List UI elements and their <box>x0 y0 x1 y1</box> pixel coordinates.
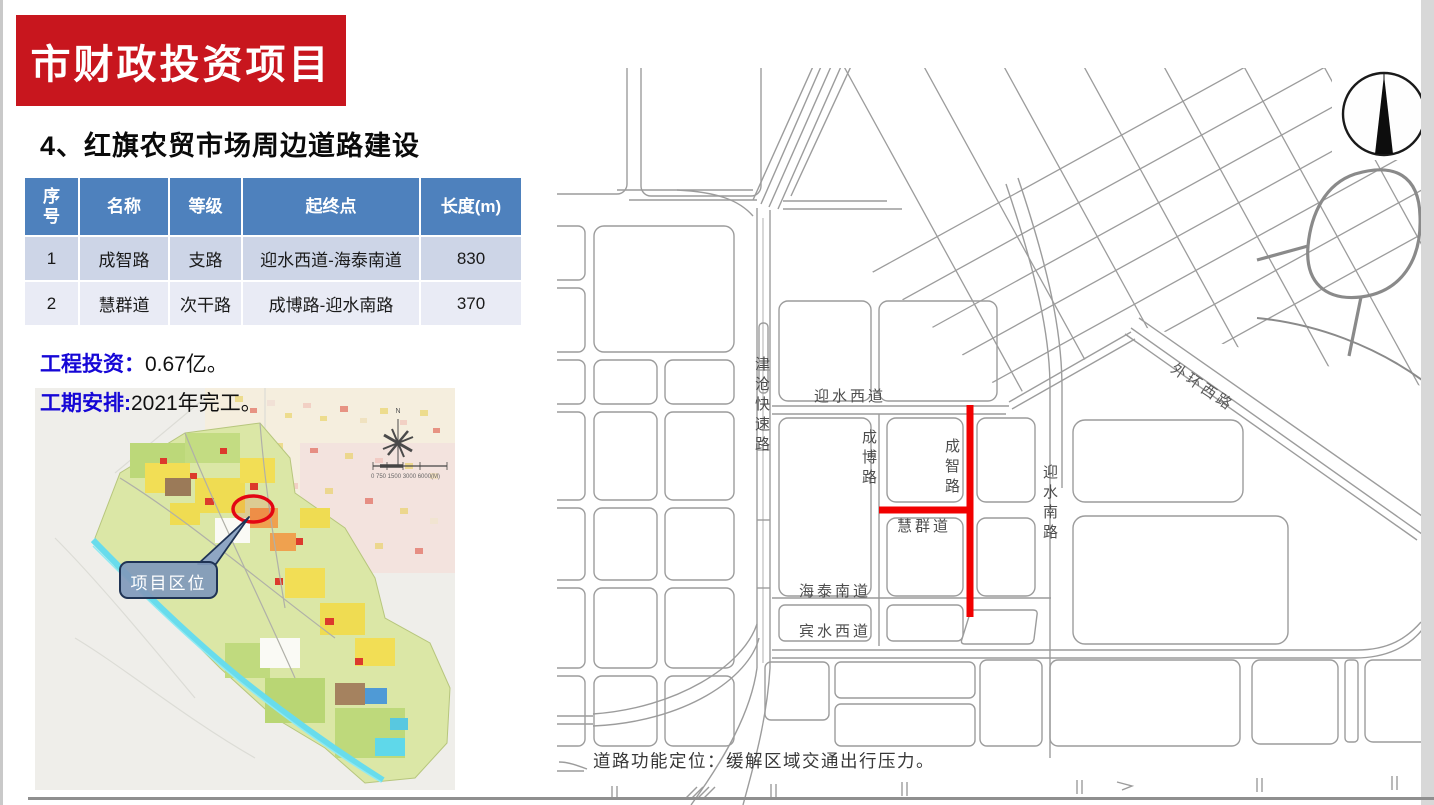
road-label-haitai-south: 海泰南道 <box>799 580 871 601</box>
table-row1-length: 830 <box>421 237 521 280</box>
investment-line: 工程投资：0.67亿。 <box>40 348 228 378</box>
road-label-yingshui-south: 迎水南路 <box>1039 464 1060 544</box>
road-label-chengbo: 成博路 <box>858 429 879 489</box>
page-title: 4、红旗农贸市场周边道路建设 <box>40 124 420 163</box>
road-function-note: 道路功能定位：缓解区域交通出行压力。 <box>593 748 935 773</box>
table-row2-grade: 次干路 <box>170 282 241 325</box>
slide: 市财政投资项目 4、红旗农贸市场周边道路建设 序号 名称 等级 起终点 长度(m… <box>0 0 1434 805</box>
north-compass-icon <box>1332 68 1422 160</box>
banner: 市财政投资项目 <box>16 15 346 106</box>
road-network-graphic <box>557 68 1422 805</box>
project-location-callout: 项目区位 <box>120 565 217 598</box>
schedule-label: 工期安排: <box>40 392 131 415</box>
road-label-huiqun: 慧群道 <box>897 515 951 536</box>
road-label-binshui-west: 宾水西道 <box>799 620 871 641</box>
table-row1-name: 成智路 <box>80 237 168 280</box>
col-header-no: 序号 <box>25 178 78 235</box>
table-row2-no: 2 <box>25 282 78 325</box>
road-label-jincang-expressway: 津沧快速路 <box>751 356 772 456</box>
scale-bar-label: 0 750 1500 3000 6000(M) <box>371 474 440 480</box>
compass-n-label: N <box>395 408 400 415</box>
col-header-length: 长度(m) <box>421 178 521 235</box>
col-header-name: 名称 <box>80 178 168 235</box>
road-label-chengzhi: 成智路 <box>941 438 962 498</box>
table-row2-endpoints: 成博路-迎水南路 <box>243 282 419 325</box>
investment-label: 工程投资： <box>40 353 145 376</box>
investment-value: 0.67亿。 <box>145 353 228 376</box>
road-label-yingshui-west: 迎水西道 <box>814 385 886 406</box>
project-table: 序号 名称 等级 起终点 长度(m) 1 成智路 支路 迎水西道-海泰南道 83… <box>25 178 521 325</box>
location-map-graphic: N 0 750 1500 3000 6000(M) <box>35 388 455 790</box>
col-header-endpoints: 起终点 <box>243 178 419 235</box>
slide-edge-right <box>1421 0 1434 805</box>
table-row1-grade: 支路 <box>170 237 241 280</box>
location-map: N 0 750 1500 3000 6000(M) 项目区位 <box>35 388 455 790</box>
project-location-marker <box>233 496 273 522</box>
table-row2-length: 370 <box>421 282 521 325</box>
slide-edge-left <box>0 0 3 805</box>
schedule-value: 2021年完工。 <box>131 392 262 415</box>
col-header-grade: 等级 <box>170 178 241 235</box>
table-row1-no: 1 <box>25 237 78 280</box>
table-row1-endpoints: 迎水西道-海泰南道 <box>243 237 419 280</box>
road-network-map: 津沧快速路 迎水西道 成博路 成智路 迎水南路 外环西路 慧群道 海泰南道 宾水… <box>557 68 1422 805</box>
table-row2-name: 慧群道 <box>80 282 168 325</box>
banner-text: 市财政投资项目 <box>31 32 332 90</box>
schedule-line: 工期安排:2021年完工。 <box>40 387 262 417</box>
slide-edge-bottom <box>28 797 1434 800</box>
